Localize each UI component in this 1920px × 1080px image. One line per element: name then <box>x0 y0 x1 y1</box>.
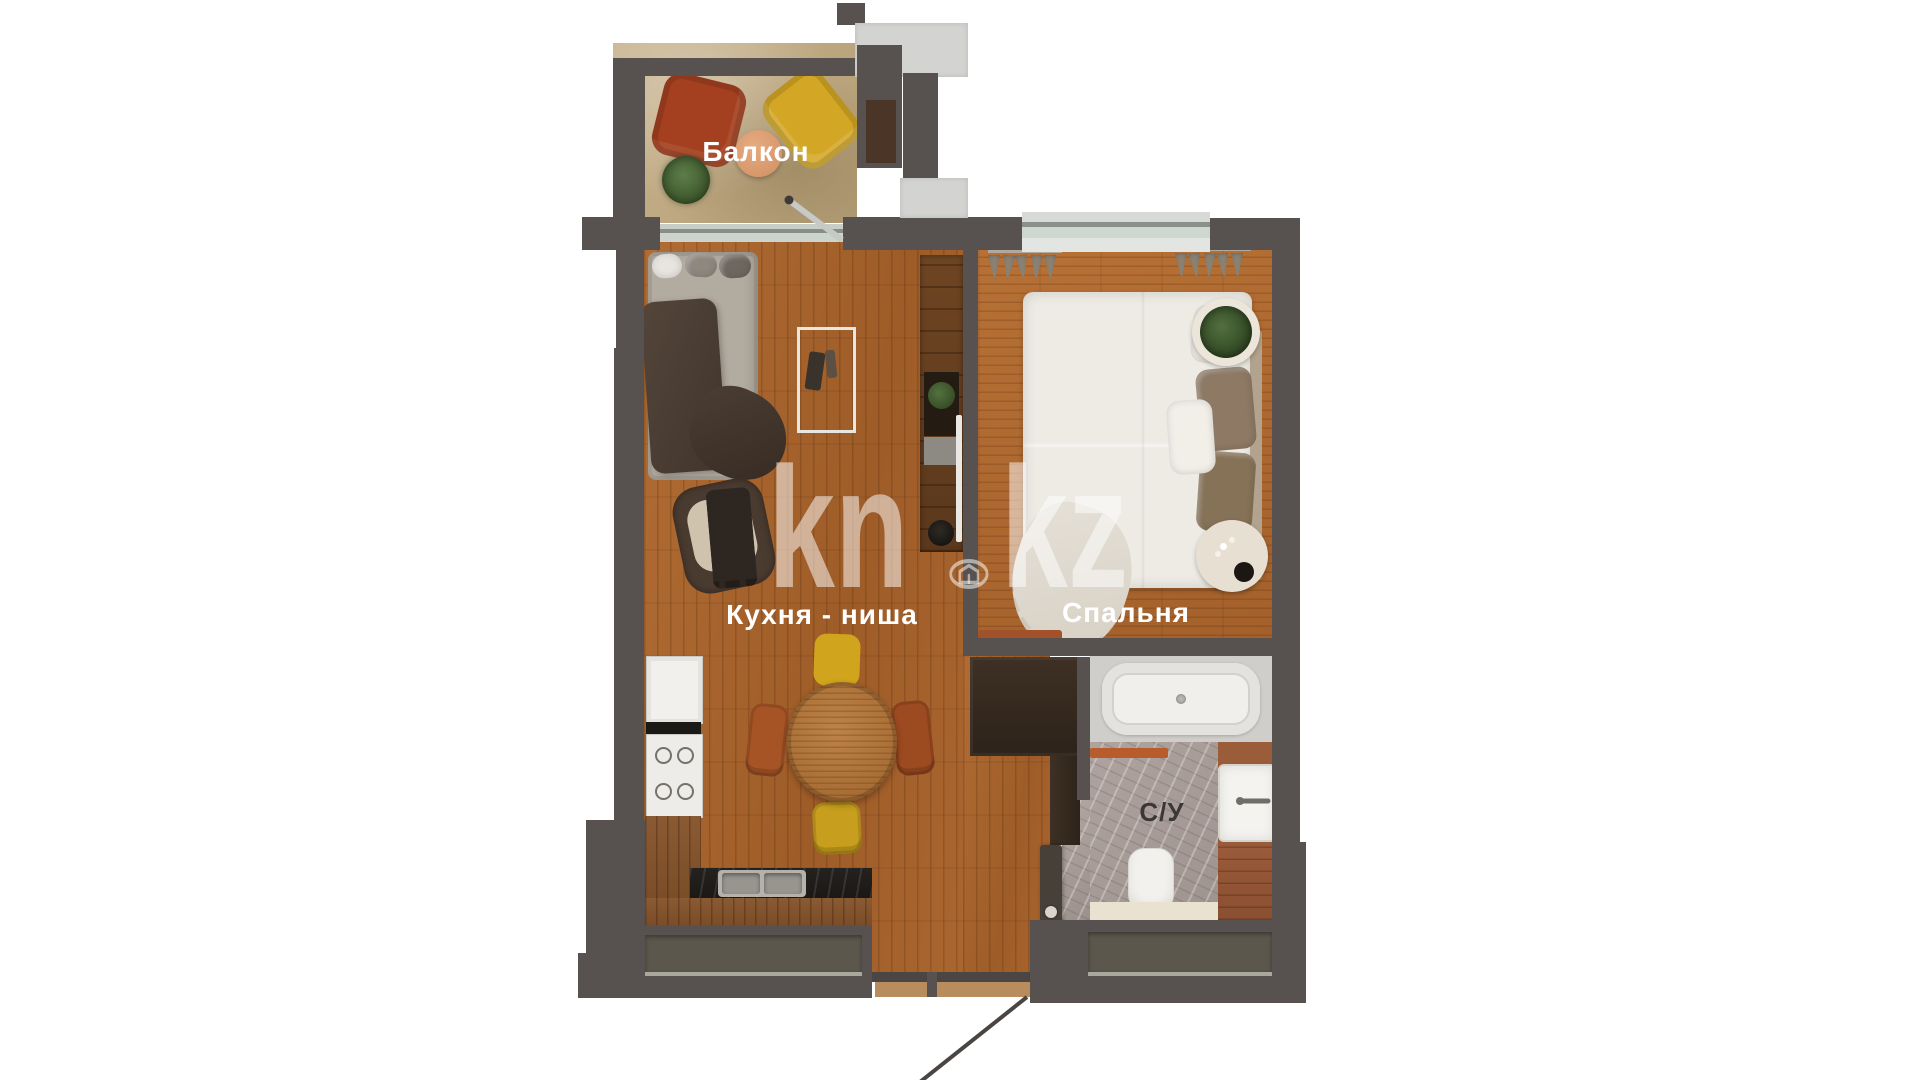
vanity-cabinet <box>1218 836 1272 920</box>
night-table-flower <box>1220 543 1227 550</box>
kitchen-label: Кухня - ниша <box>726 599 918 631</box>
bathroom-label: С/У <box>1139 797 1184 828</box>
shelf-plant <box>928 382 955 409</box>
house-in-circle-icon <box>946 559 991 589</box>
night-table-flower <box>1229 537 1235 543</box>
bathroom-sink <box>1218 764 1276 842</box>
hanging-clothes-icon <box>1044 255 1056 281</box>
bottom-wall-niche <box>645 935 862 976</box>
night-table <box>1196 520 1268 592</box>
entry-step <box>875 982 1037 997</box>
dining-chair-yellow <box>813 633 861 687</box>
floor-plan: kn kz Балкон Кухня - ниша Спальня С/У <box>0 0 1920 1080</box>
watermark: kn kz <box>768 442 1128 614</box>
bottom-wall-niche <box>1088 932 1272 976</box>
dining-chair-rust <box>890 699 936 777</box>
bed-pillow-white <box>1165 398 1216 475</box>
bedroom-plant <box>1200 306 1252 358</box>
hanging-clothes-icon <box>988 255 1000 281</box>
balcony-top-wall <box>645 58 857 76</box>
bedroom-bottom-wall <box>963 638 1277 656</box>
hanging-clothes-icon <box>1202 253 1216 280</box>
watermark-text-kn: kn <box>768 432 909 624</box>
right-wall-upper <box>1272 218 1300 842</box>
watermark-text-kz: kz <box>1001 432 1128 624</box>
entrance-door-swing <box>920 997 1027 1080</box>
balcony-label: Балкон <box>702 136 809 168</box>
hanging-clothes-icon <box>1188 252 1203 279</box>
entry-threshold <box>872 972 1040 982</box>
sofa-pillow <box>684 252 718 278</box>
hanging-clothes-icon <box>1015 255 1029 282</box>
night-table-vase <box>1234 562 1254 582</box>
hanging-clothes-icon <box>1231 253 1243 279</box>
dining-table <box>787 682 897 802</box>
balcony-left-wall <box>613 58 645 223</box>
shaft-niche <box>866 100 896 163</box>
shaft-wall <box>903 73 938 178</box>
burner-icon <box>655 783 672 800</box>
burner-icon <box>677 747 694 764</box>
bathroom-left-wall <box>1077 657 1090 800</box>
armchair-throw <box>705 487 757 589</box>
hall-closet <box>970 657 1080 756</box>
kitchen-sink <box>718 870 806 897</box>
kitchen-counter-divider <box>646 722 701 734</box>
sink-basin <box>764 873 802 894</box>
bath-mat <box>1090 902 1218 920</box>
night-table-flower <box>1215 551 1221 557</box>
entry-jamb <box>927 972 937 997</box>
hanging-clothes-icon <box>1175 253 1187 279</box>
bedroom-top-wall <box>843 217 1022 250</box>
fridge <box>646 656 703 724</box>
dining-chair-yellow <box>812 801 863 855</box>
door-handle-icon <box>1045 906 1057 918</box>
bathtub-drain-icon <box>1176 694 1186 704</box>
left-wall-mid <box>614 348 644 820</box>
hanging-clothes-icon <box>1001 254 1016 281</box>
bedroom-window <box>1022 212 1210 252</box>
sofa-pillow <box>718 253 751 279</box>
stove <box>646 734 703 818</box>
hanging-clothes-icon <box>1029 255 1043 282</box>
sink-basin <box>722 873 760 894</box>
burner-icon <box>677 783 694 800</box>
hall-closet-side <box>1050 756 1080 845</box>
wardrobe-hangers <box>988 250 1062 285</box>
shaft-dark-corner <box>837 3 865 25</box>
dining-chair-rust <box>744 702 789 778</box>
wardrobe-hangers <box>1175 248 1251 283</box>
left-wall-upper <box>616 212 644 348</box>
bedroom-label: Спальня <box>1062 597 1190 629</box>
hanging-clothes-icon <box>1216 253 1230 280</box>
right-wall-lower <box>1272 842 1306 1003</box>
left-wall-step <box>578 953 586 998</box>
balcony-window <box>660 224 843 242</box>
bath-towel <box>1090 748 1168 758</box>
bedroom-top-right-corner <box>1210 218 1300 250</box>
kitchen-counter-bottom <box>645 898 872 925</box>
burner-icon <box>655 747 672 764</box>
concrete-block-bottom <box>900 178 968 218</box>
